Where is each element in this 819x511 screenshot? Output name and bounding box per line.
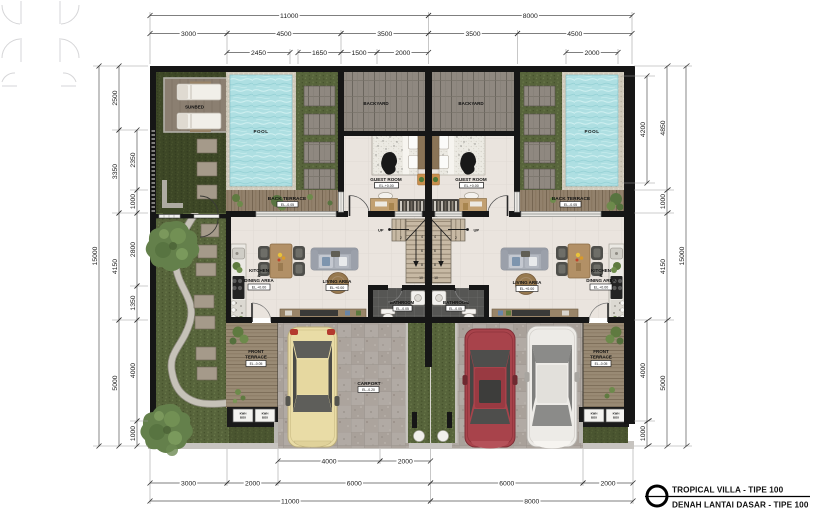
svg-text:1000: 1000 — [660, 194, 667, 209]
svg-text:BOX: BOX — [262, 416, 268, 420]
svg-text:CARPORT: CARPORT — [357, 381, 380, 386]
svg-text:BOX: BOX — [240, 416, 246, 420]
svg-text:BACK TERRACE: BACK TERRACE — [552, 196, 591, 202]
svg-text:1650: 1650 — [312, 50, 327, 57]
svg-text:UP: UP — [378, 228, 384, 233]
svg-text:EL.-0.05: EL.-0.05 — [564, 203, 577, 207]
svg-text:10: 10 — [419, 276, 423, 280]
svg-text:EL.-0.05: EL.-0.05 — [595, 362, 608, 366]
svg-text:4150: 4150 — [112, 259, 119, 274]
svg-text:EL.-0.20: EL.-0.20 — [362, 388, 375, 392]
svg-text:2000: 2000 — [398, 458, 413, 465]
svg-text:EL.-0.05: EL.-0.05 — [396, 307, 409, 311]
svg-text:4850: 4850 — [660, 120, 667, 135]
svg-text:LIVING AREA: LIVING AREA — [323, 279, 353, 284]
svg-text:3350: 3350 — [112, 164, 119, 179]
svg-text:EL.+0.00: EL.+0.00 — [330, 286, 345, 290]
svg-text:15000: 15000 — [679, 246, 686, 265]
svg-text:1500: 1500 — [351, 50, 366, 57]
svg-text:6: 6 — [421, 249, 423, 253]
svg-text:POOL: POOL — [584, 129, 599, 134]
svg-text:4000: 4000 — [640, 363, 647, 378]
svg-text:2000: 2000 — [584, 50, 599, 57]
svg-text:2: 2 — [400, 236, 402, 240]
svg-text:2000: 2000 — [245, 480, 260, 487]
svg-text:2000: 2000 — [600, 480, 615, 487]
svg-text:4: 4 — [421, 235, 423, 239]
svg-text:EL.-0.05: EL.-0.05 — [250, 362, 263, 366]
svg-text:BATHROOM: BATHROOM — [443, 300, 469, 305]
svg-text:DENAH LANTAI DASAR - TIPE 100: DENAH LANTAI DASAR - TIPE 100 — [672, 501, 809, 510]
svg-text:1000: 1000 — [640, 426, 647, 441]
svg-text:11000: 11000 — [281, 498, 300, 505]
svg-text:6000: 6000 — [347, 480, 362, 487]
svg-text:BACK TERRACE: BACK TERRACE — [268, 196, 307, 202]
svg-text:1350: 1350 — [130, 295, 137, 310]
svg-text:3000: 3000 — [181, 480, 196, 487]
svg-text:EL.+0.00: EL.+0.00 — [520, 287, 535, 291]
svg-text:EL.+0.00: EL.+0.00 — [594, 286, 609, 290]
svg-text:4000: 4000 — [130, 363, 137, 378]
svg-text:1000: 1000 — [130, 426, 137, 441]
svg-text:DINING AREA: DINING AREA — [586, 278, 616, 283]
svg-text:EL.+0.00: EL.+0.00 — [464, 184, 479, 188]
svg-text:4500: 4500 — [567, 31, 582, 38]
svg-text:GUEST ROOM: GUEST ROOM — [455, 177, 487, 182]
svg-text:SUNBED: SUNBED — [185, 105, 205, 110]
svg-text:15000: 15000 — [92, 246, 99, 265]
svg-text:4200: 4200 — [640, 122, 647, 137]
svg-text:EL.-0.05: EL.-0.05 — [449, 307, 462, 311]
svg-text:BACKYARD: BACKYARD — [458, 101, 484, 106]
svg-text:TROPICAL VILLA - TIPE 100: TROPICAL VILLA - TIPE 100 — [672, 486, 784, 495]
svg-text:TERRACE: TERRACE — [245, 355, 267, 360]
svg-text:BOX: BOX — [591, 416, 597, 420]
svg-text:8: 8 — [434, 263, 436, 267]
svg-text:8000: 8000 — [523, 13, 538, 20]
svg-text:8000: 8000 — [524, 498, 539, 505]
svg-text:2800: 2800 — [130, 242, 137, 257]
svg-text:2000: 2000 — [395, 50, 410, 57]
svg-text:EL.-0.05: EL.-0.05 — [281, 203, 294, 207]
svg-text:5000: 5000 — [660, 375, 667, 390]
svg-text:3500: 3500 — [377, 31, 392, 38]
svg-text:10: 10 — [434, 276, 438, 280]
svg-text:UP: UP — [474, 228, 480, 233]
svg-text:6000: 6000 — [499, 480, 514, 487]
svg-text:BACKYARD: BACKYARD — [363, 101, 389, 106]
svg-text:GUEST ROOM: GUEST ROOM — [370, 177, 402, 182]
svg-text:2350: 2350 — [130, 152, 137, 167]
svg-text:4150: 4150 — [660, 259, 667, 274]
svg-text:2450: 2450 — [251, 50, 266, 57]
svg-text:4: 4 — [434, 235, 436, 239]
svg-text:1000: 1000 — [130, 194, 137, 209]
svg-text:4000: 4000 — [321, 458, 336, 465]
svg-text:LIVING AREA: LIVING AREA — [513, 280, 543, 285]
svg-text:3500: 3500 — [465, 31, 480, 38]
svg-text:11000: 11000 — [280, 13, 299, 20]
svg-text:TERRACE: TERRACE — [590, 355, 612, 360]
svg-text:POOL: POOL — [253, 129, 268, 134]
svg-text:5000: 5000 — [112, 375, 119, 390]
svg-text:EL.+0.00: EL.+0.00 — [252, 286, 267, 290]
svg-text:4500: 4500 — [276, 31, 291, 38]
svg-text:FRONT: FRONT — [248, 349, 264, 354]
svg-text:2500: 2500 — [112, 90, 119, 105]
svg-text:EL.+0.00: EL.+0.00 — [379, 184, 394, 188]
svg-text:BOX: BOX — [613, 416, 619, 420]
svg-text:8: 8 — [421, 263, 423, 267]
svg-text:3000: 3000 — [181, 31, 196, 38]
svg-text:DINING AREA: DINING AREA — [244, 278, 274, 283]
svg-text:2: 2 — [455, 236, 457, 240]
svg-text:FRONT: FRONT — [593, 349, 609, 354]
svg-text:6: 6 — [434, 249, 436, 253]
